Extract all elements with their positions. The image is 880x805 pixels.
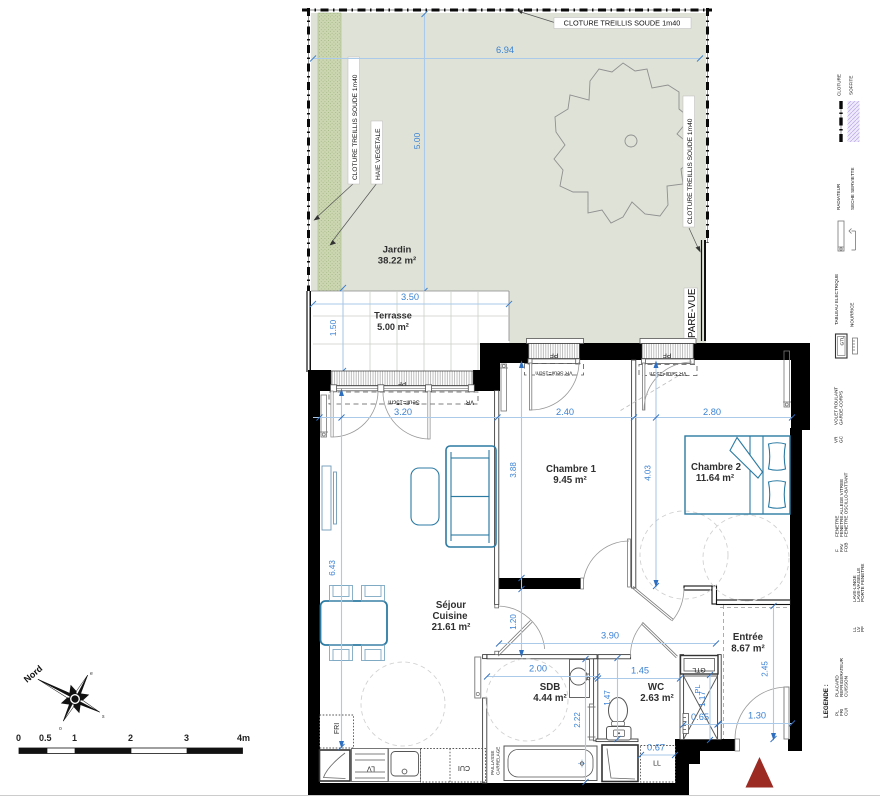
svg-text:FENETRE OSCILLO-BATTANT: FENETRE OSCILLO-BATTANT (844, 472, 849, 537)
svg-text:2.45: 2.45 (761, 661, 770, 677)
svg-text:CUI: CUI (844, 708, 849, 716)
svg-text:38.22 m²: 38.22 m² (378, 256, 416, 267)
svg-text:SDB: SDB (540, 682, 560, 693)
svg-text:SOFFITE: SOFFITE (849, 76, 854, 95)
svg-text:PF: PF (550, 352, 558, 359)
svg-text:1.30: 1.30 (748, 711, 766, 721)
svg-text:1: 1 (72, 733, 77, 743)
svg-text:Terrasse: Terrasse (374, 311, 412, 321)
svg-text:PAILLASSE: PAILLASSE (490, 751, 495, 775)
svg-text:2.40: 2.40 (556, 407, 574, 417)
svg-text:Jardin: Jardin (383, 245, 412, 256)
svg-text:0.5: 0.5 (39, 733, 52, 743)
svg-text:CUI: CUI (458, 764, 470, 771)
svg-text:0.65: 0.65 (691, 712, 709, 722)
svg-text:Chambre 2: Chambre 2 (691, 462, 741, 473)
svg-text:4.03: 4.03 (644, 465, 653, 481)
svg-text:1.47: 1.47 (603, 690, 612, 706)
svg-text:11.64 m²: 11.64 m² (696, 473, 735, 484)
svg-text:VR Seuil=15cm: VR Seuil=15cm (649, 370, 687, 376)
svg-text:1.20: 1.20 (509, 614, 518, 630)
svg-text:GTL: GTL (840, 336, 846, 346)
svg-text:2.00: 2.00 (529, 664, 547, 674)
svg-text:Entrée: Entrée (733, 632, 764, 643)
svg-text:3.88: 3.88 (509, 462, 518, 478)
svg-text:NOURRICE: NOURRICE (850, 302, 855, 327)
svg-text:21.61 m²: 21.61 m² (432, 622, 472, 633)
svg-text:2.80: 2.80 (703, 407, 721, 417)
svg-text:PF: PF (663, 352, 671, 359)
svg-text:4m: 4m (237, 733, 250, 743)
svg-text:LL: LL (653, 761, 661, 768)
svg-text:GARDE-CORPS: GARDE-CORPS (839, 391, 844, 425)
svg-text:Chambre 1: Chambre 1 (546, 464, 597, 475)
svg-text:GC: GC (839, 435, 844, 443)
svg-text:0: 0 (16, 733, 21, 743)
svg-text:2.63 m²: 2.63 m² (640, 693, 674, 704)
svg-text:CLOTURE: CLOTURE (837, 74, 842, 96)
svg-text:1.45: 1.45 (631, 666, 649, 676)
svg-text:o: o (59, 726, 62, 732)
svg-text:TABLEAU ELECTRIQUE: TABLEAU ELECTRIQUE (834, 274, 839, 325)
svg-text:PORTE FENETRE: PORTE FENETRE (860, 564, 865, 602)
svg-text:CLOTURE TREILLIS SOUDE 1m40: CLOTURE TREILLIS SOUDE 1m40 (564, 19, 681, 28)
svg-text:Seuil=15cm: Seuil=15cm (388, 399, 420, 405)
svg-text:Cuisine: Cuisine (433, 611, 469, 622)
svg-text:CARRELAGE: CARRELAGE (496, 747, 501, 775)
svg-text:3.50: 3.50 (401, 292, 419, 302)
svg-text:SECHE SERVIETTE: SECHE SERVIETTE (850, 167, 855, 210)
svg-text:6.94: 6.94 (496, 45, 514, 55)
svg-text:GTL: GTL (692, 666, 705, 673)
svg-text:FOB: FOB (844, 543, 849, 552)
svg-text:3: 3 (184, 733, 189, 743)
svg-text:WC: WC (648, 682, 664, 693)
svg-text:RADIATEUR: RADIATEUR (836, 183, 841, 210)
svg-text:0.67: 0.67 (647, 743, 665, 753)
svg-text:e: e (90, 671, 93, 677)
svg-text:9.45 m²: 9.45 m² (553, 475, 587, 486)
svg-text:5.00 m²: 5.00 m² (377, 322, 409, 332)
svg-text:LV: LV (367, 765, 375, 772)
svg-text:VR: VR (465, 399, 474, 405)
svg-text:VR Seuil=15cm: VR Seuil=15cm (535, 370, 573, 376)
svg-text:1.17: 1.17 (698, 691, 707, 707)
svg-text:5.00: 5.00 (412, 132, 422, 149)
svg-text:2: 2 (128, 733, 133, 743)
svg-text:6.43: 6.43 (328, 560, 337, 576)
svg-text:CLOTURE TREILLIS SOUDE 1m40: CLOTURE TREILLIS SOUDE 1m40 (352, 74, 359, 180)
svg-text:1.50: 1.50 (328, 319, 338, 336)
svg-text:CLOTURE TREILLIS SOUDE 1m40: CLOTURE TREILLIS SOUDE 1m40 (687, 118, 694, 224)
svg-text:8.67 m²: 8.67 m² (731, 644, 765, 655)
svg-text:3.20: 3.20 (394, 407, 412, 417)
svg-text:4.44 m²: 4.44 m² (533, 693, 567, 704)
svg-text:FRI: FRI (334, 723, 341, 734)
svg-text:2.22: 2.22 (573, 712, 582, 728)
svg-text:CUISSON: CUISSON (844, 676, 849, 697)
svg-text:3.90: 3.90 (601, 631, 619, 641)
svg-text:PF: PF (860, 626, 865, 632)
svg-text:Séjour: Séjour (436, 600, 466, 611)
svg-text:PARE-VUE: PARE-VUE (687, 288, 698, 338)
svg-text:LEGENDE :: LEGENDE : (823, 684, 830, 718)
svg-text:HAIE VEGETALE: HAIE VEGETALE (375, 128, 382, 180)
